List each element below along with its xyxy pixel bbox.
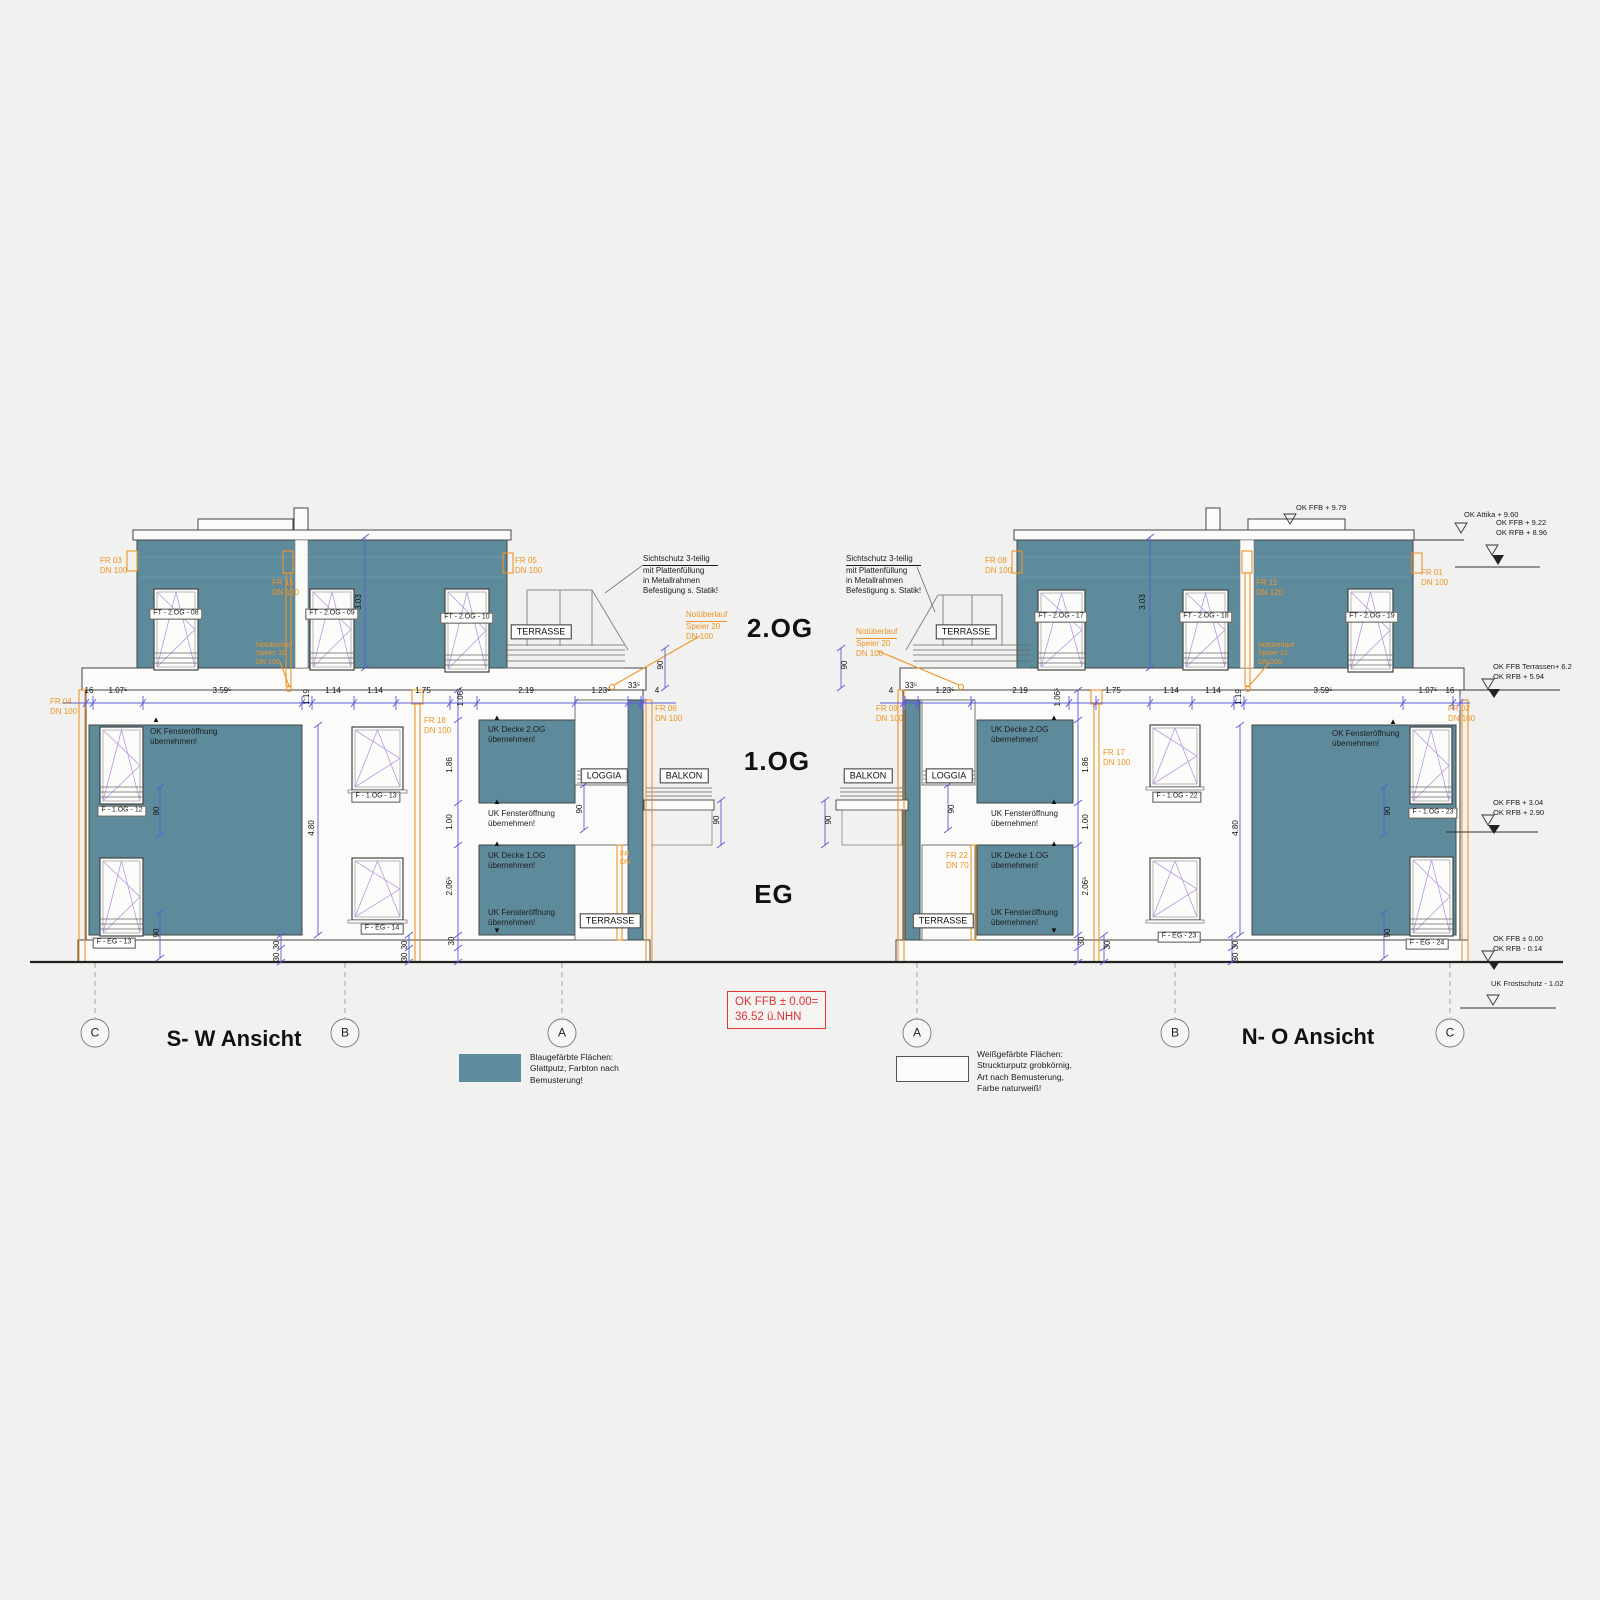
note-uk-decke2-right: UK Decke 2.OGübernehmen! (991, 725, 1048, 745)
left-balcony-slab (644, 800, 714, 810)
dim-right-480: 4.80 (1231, 820, 1241, 836)
window (1038, 590, 1085, 670)
note-sichtschutz-left: Sichtschutz 3-teiligmit Plattenfüllungin… (643, 554, 718, 596)
dim-left-114a: 1.14 (325, 686, 341, 696)
left-sichtschutz-leader (605, 565, 643, 593)
pipe-label-fr18: FR 18DN 100 (424, 716, 451, 736)
note-sichtschutz-right: Sichtschutz 3-teiligmit Plattenfüllungin… (846, 554, 921, 596)
floor-label-1og: 1.OG (744, 745, 810, 778)
window (100, 727, 143, 804)
window (348, 727, 407, 793)
right-chimney (1206, 508, 1220, 530)
ffb-reference-line2: 36.52 ü.NHN (735, 1010, 818, 1025)
triangle-up-icon: ▲ (152, 716, 160, 724)
dim-right-1075: 1.07⁵ (1419, 686, 1438, 696)
window (310, 589, 354, 670)
dim-left-335: 33⁵ (628, 681, 640, 691)
dim-left-2065: 2.06⁵ (445, 877, 455, 896)
dim-right-114b: 1.14 (1205, 686, 1221, 696)
window (1410, 857, 1453, 936)
level-ok-rfb-594: OK RFB + 5.94 (1493, 672, 1544, 681)
dim-left-90a: 90 (152, 807, 162, 816)
left-privacy-screen (527, 590, 628, 650)
dim-right-90d: 90 (824, 816, 834, 825)
left-grid-lines (95, 963, 562, 1018)
dim-left-219: 2.19 (518, 686, 534, 696)
level-ok-rfb-014: OK RFB - 0.14 (1493, 944, 1542, 953)
pipe-label-fr05: FR 05DN 100 (515, 556, 542, 576)
view-title-right: N- O Ansicht (1242, 1023, 1374, 1051)
note-uk-fenster1-right: UK Fensteröffnungübernehmen! (991, 809, 1058, 829)
dim-left-480: 4.80 (307, 820, 317, 836)
view-title-left: S- W Ansicht (167, 1025, 302, 1053)
legend-white-line3: Art nach Bemusterung, (977, 1072, 1072, 1083)
triangle-up-icon: ▲ (493, 840, 501, 848)
window-label-ft-2og-08: FT - 2.OG - 08 (149, 609, 202, 620)
dim-left-30c: 30 (272, 953, 282, 962)
window-label-f-1og-23: F - 1.OG - 23 (1408, 808, 1457, 819)
legend-white-line4: Farbe naturweiß! (977, 1083, 1072, 1094)
dim-right-303: 3.03 (1138, 594, 1148, 610)
dim-right-186: 1.86 (1081, 757, 1091, 773)
dim-right-219: 2.19 (1012, 686, 1028, 696)
elevation-drawing (0, 0, 1600, 1600)
dim-right-1235: 1.23⁵ (936, 686, 955, 696)
grid-bubble-left-a: A (558, 1026, 566, 1041)
left-roof-parapet (198, 519, 293, 530)
overflow-note-left-inner: NotüberlaufSpeier 10DN 100 (256, 642, 292, 667)
pipe-label-fr11: FR 11DN 120 (1256, 578, 1283, 598)
right-balcony-support (842, 810, 902, 845)
pipe-label-fr01: FR 01DN 100 (1421, 568, 1448, 588)
window-label-f-eg-13: F - EG - 13 (93, 938, 136, 949)
level-ok-ffb-979: OK FFB + 9.79 (1296, 503, 1346, 512)
left-floor-slab (82, 668, 646, 690)
legend-blue-line1: Blaugefärbte Flächen: (530, 1052, 619, 1063)
dim-right-100: 1.00 (1081, 814, 1091, 830)
dim-left-90d: 90 (712, 816, 722, 825)
window (100, 858, 143, 936)
triangle-up-icon: ▲ (1050, 798, 1058, 806)
dim-left-90b: 90 (152, 929, 162, 938)
level-ok-ffb-922: OK FFB + 9.22 (1496, 518, 1546, 527)
pipe-label-fr15: FR 15DN 100 (272, 578, 299, 598)
triangle-up-icon: ▲ (1050, 714, 1058, 722)
triangle-up-icon: ▲ (493, 714, 501, 722)
dim-right-119: 1.19 (1234, 689, 1244, 705)
dim-right-90c: 90 (840, 661, 850, 670)
terrasse-label-eg-left: TERRASSE (580, 913, 641, 928)
left-pilaster (295, 540, 308, 668)
dim-left-90c: 90 (656, 661, 666, 670)
window (1146, 725, 1204, 790)
overflow-note-right: NotüberlaufSpeier 20DN 100 (856, 627, 897, 659)
dim-left-119: 1.19 (302, 689, 312, 705)
window-label-ft-2og-10: FT - 2.OG - 10 (440, 613, 493, 624)
dim-right-16: 16 (1446, 686, 1455, 696)
floor-label-eg: EG (754, 878, 794, 911)
pipe-label-fr03: FR 03DN 100 (100, 556, 127, 576)
window-label-f-1og-13: F - 1.OG - 13 (351, 792, 400, 803)
dim-left-114b: 1.14 (367, 686, 383, 696)
dim-right-175: 1.75 (1105, 686, 1121, 696)
dim-right-3595: 3.59⁵ (1314, 686, 1333, 696)
legend-white-text: Weißgefärbte Flächen: Struckturputz grob… (977, 1049, 1072, 1095)
level-uk-frostschutz: UK Frostschutz - 1.02 (1491, 979, 1564, 988)
left-chimney (294, 508, 308, 530)
overflow-note-right-inner: NotüberlaufSpeier 12DN 100 (1258, 642, 1294, 667)
pipe-label-fr04: FR 04DN 100 (50, 697, 77, 717)
dim-left-303: 3.03 (354, 594, 364, 610)
loggia-label-right: LOGGIA (926, 768, 973, 783)
dim-left-90e: 90 (575, 805, 585, 814)
dim-left-30a: 30 (447, 937, 457, 946)
dim-left-30d: 30 (400, 941, 410, 950)
level-ok-ffb-000: OK FFB ± 0.00 (1493, 934, 1543, 943)
triangle-down-icon: ▼ (1050, 927, 1058, 935)
dim-right-90e: 90 (947, 805, 957, 814)
dim-left-1065: 1.06⁵ (456, 688, 466, 707)
grid-bubble-right-c: C (1446, 1026, 1455, 1041)
left-balcony-support (652, 810, 712, 845)
dim-right-90a: 90 (1383, 807, 1393, 816)
level-flags-filled (1488, 555, 1504, 970)
pipe-label-fr09: FR 09DN 100 (876, 704, 903, 724)
pipe-label-fr08: FR 08DN 100 (985, 556, 1012, 576)
pipe-label-fr02: FR 02DN 100 (1448, 704, 1475, 724)
legend-blue-line3: Bemusterung! (530, 1075, 619, 1086)
dim-left-4: 4 (655, 686, 659, 696)
overflow-note-left: NotüberlaufSpeier 20DN 100 (686, 610, 727, 642)
dim-left-175: 1.75 (415, 686, 431, 696)
pipe-label-fr06: FR 06DN 100 (655, 704, 682, 724)
terrasse-label-2og-right: TERRASSE (936, 624, 997, 639)
triangle-up-icon: ▲ (1389, 718, 1397, 726)
note-uk-fenster2-right: UK Fensteröffnungübernehmen! (991, 908, 1058, 928)
loggia-label-left: LOGGIA (581, 768, 628, 783)
right-balcony-slab (836, 800, 908, 810)
window-label-f-1og-12: F - 1.OG - 12 (97, 806, 146, 817)
dim-left-16: 16 (85, 686, 94, 696)
right-plinth (896, 940, 1468, 962)
legend-white-line1: Weißgefärbte Flächen: (977, 1049, 1072, 1060)
dim-right-335: 33⁵ (905, 681, 917, 691)
dim-left-186: 1.86 (445, 757, 455, 773)
window-label-f-eg-23: F - EG - 23 (1158, 932, 1201, 943)
grid-bubble-left-b: B (341, 1026, 349, 1041)
dim-left-1235: 1.23⁵ (592, 686, 611, 696)
dim-left-3595: 3.59⁵ (213, 686, 232, 696)
legend-blue-text: Blaugefärbte Flächen: Glattputz, Farbton… (530, 1052, 619, 1086)
right-privacy-screen (906, 595, 1003, 650)
ffb-reference-note: OK FFB ± 0.00= 36.52 ü.NHN (727, 991, 826, 1029)
triangle-up-icon: ▲ (493, 798, 501, 806)
dim-left-30e: 30 (400, 953, 410, 962)
legend-white-line2: Struckturputz grobkörnig, (977, 1060, 1072, 1071)
dim-right-4: 4 (889, 686, 893, 696)
note-uk-decke2-left: UK Decke 2.OGübernehmen! (488, 725, 545, 745)
balkon-label-right: BALKON (844, 768, 893, 783)
window (1146, 858, 1204, 923)
window-label-f-1og-22: F - 1.OG - 22 (1152, 792, 1201, 803)
ffb-reference-line1: OK FFB ± 0.00= (735, 995, 818, 1010)
elevation-sheet: 2.OG 1.OG EG S- W Ansicht N- O Ansicht O… (0, 0, 1600, 1600)
terrasse-label-2og-left: TERRASSE (511, 624, 572, 639)
dim-right-1065: 1.06⁵ (1053, 688, 1063, 707)
pipe-label-truncated-left: FRDN (620, 851, 630, 868)
window (445, 589, 489, 672)
dim-right-30b: 30 (1231, 941, 1241, 950)
level-ok-ffb-terrassen: OK FFB Terrassen+ 6.2 (1493, 662, 1572, 671)
grid-bubble-left-c: C (91, 1026, 100, 1041)
window (348, 858, 407, 923)
note-ok-fenster-right: OK Fensteröffnungübernehmen! (1332, 729, 1399, 749)
note-uk-decke1-right: UK Decke 1.OGübernehmen! (991, 851, 1048, 871)
grid-bubble-right-b: B (1171, 1026, 1179, 1041)
window-label-ft-2og-17: FT - 2.OG - 17 (1034, 612, 1087, 623)
right-grid-bubbles (903, 1019, 1464, 1047)
legend-white-swatch (896, 1056, 969, 1082)
dim-left-1075: 1.07⁵ (109, 686, 128, 696)
dim-right-2065: 2.06⁵ (1081, 877, 1091, 896)
window-label-f-eg-24: F - EG - 24 (1406, 939, 1449, 950)
window (1348, 589, 1393, 672)
window-label-ft-2og-09: FT - 2.OG - 09 (305, 609, 358, 620)
triangle-up-icon: ▲ (1050, 840, 1058, 848)
pipe-label-fr22: FR 22DN 70 (946, 851, 969, 871)
legend-blue-line2: Glattputz, Farbton nach (530, 1063, 619, 1074)
note-uk-fenster2-left: UK Fensteröffnungübernehmen! (488, 908, 555, 928)
dim-right-90b: 90 (1383, 929, 1393, 938)
level-ok-rfb-290: OK RFB + 2.90 (1493, 808, 1544, 817)
left-grid-bubbles (81, 1019, 576, 1047)
note-uk-decke1-left: UK Decke 1.OGübernehmen! (488, 851, 545, 871)
window-label-ft-2og-19: FT - 2.OG - 19 (1345, 612, 1398, 623)
dim-right-114a: 1.14 (1163, 686, 1179, 696)
window-label-f-eg-14: F - EG - 14 (361, 924, 404, 935)
left-plinth (78, 940, 650, 962)
dim-right-30c: 30 (1231, 953, 1241, 962)
dim-right-30d: 30 (1103, 941, 1113, 950)
dim-left-100: 1.00 (445, 814, 455, 830)
right-grid-lines (917, 963, 1450, 1018)
dim-left-30b: 30 (272, 941, 282, 950)
floor-label-2og: 2.OG (747, 612, 813, 645)
note-uk-fenster1-left: UK Fensteröffnungübernehmen! (488, 809, 555, 829)
window (1183, 590, 1228, 670)
balkon-label-left: BALKON (660, 768, 709, 783)
pipe-label-fr17: FR 17DN 100 (1103, 748, 1130, 768)
dim-right-30a: 30 (1077, 937, 1087, 946)
right-roof-parapet (1248, 519, 1345, 530)
window (1410, 727, 1452, 804)
note-ok-fenster-left: OK Fensteröffnungübernehmen! (150, 727, 217, 747)
grid-bubble-right-a: A (913, 1026, 921, 1041)
window-label-ft-2og-18: FT - 2.OG - 18 (1179, 612, 1232, 623)
terrasse-label-eg-right: TERRASSE (913, 913, 974, 928)
legend-blue-swatch (459, 1054, 521, 1082)
level-ok-ffb-304: OK FFB + 3.04 (1493, 798, 1543, 807)
triangle-down-icon: ▼ (493, 927, 501, 935)
window (154, 589, 198, 670)
right-roof-slab (1014, 530, 1414, 540)
level-ok-rfb-896: OK RFB + 8.96 (1496, 528, 1547, 537)
left-roof-slab (133, 530, 511, 540)
